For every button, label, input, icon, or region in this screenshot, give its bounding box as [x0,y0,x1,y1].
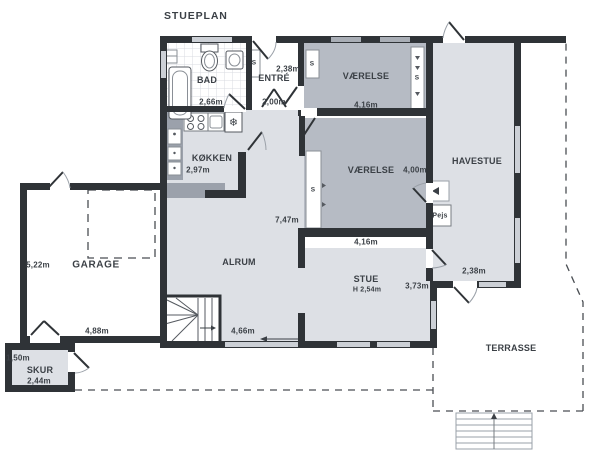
floorplan-drawing: ❄ [0,0,600,453]
closet-vaerelse-mid [306,151,321,228]
room-stue [300,248,430,341]
room-vaerelse-mid [304,118,426,228]
room-vaerelse-top [304,43,426,108]
floorplan-stueplan: ❄ [0,0,600,453]
closet-vaerelse-top-left [306,50,319,78]
room-skur [8,348,70,387]
freezer-icon: ❄ [229,117,238,129]
interior-stairs [163,296,220,343]
room-havestue [433,43,514,281]
terrasse-stairs [456,413,532,449]
